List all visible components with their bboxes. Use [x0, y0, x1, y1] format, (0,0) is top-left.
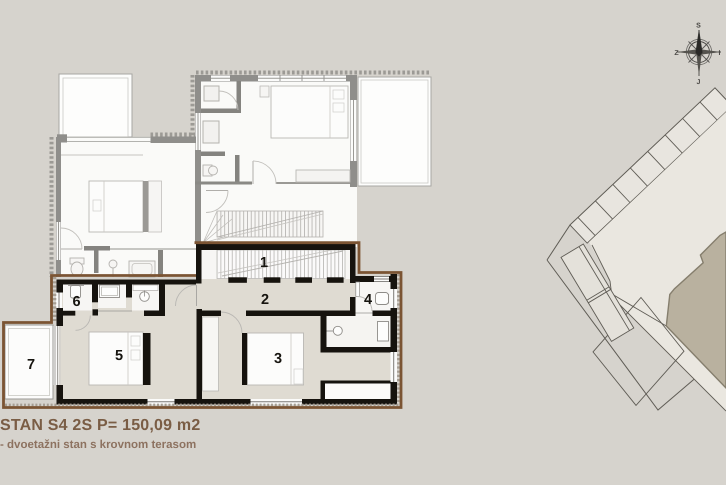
- svg-text:7: 7: [27, 357, 35, 373]
- svg-text:5: 5: [115, 348, 123, 364]
- svg-text:6: 6: [72, 294, 80, 310]
- svg-text:1: 1: [260, 255, 268, 271]
- svg-text:4: 4: [364, 292, 372, 308]
- svg-text:I: I: [719, 50, 721, 57]
- svg-text:Z: Z: [674, 50, 679, 57]
- svg-text:J: J: [697, 79, 701, 86]
- svg-text:3: 3: [274, 351, 282, 367]
- svg-text:S: S: [696, 23, 701, 30]
- svg-text:2: 2: [261, 292, 269, 308]
